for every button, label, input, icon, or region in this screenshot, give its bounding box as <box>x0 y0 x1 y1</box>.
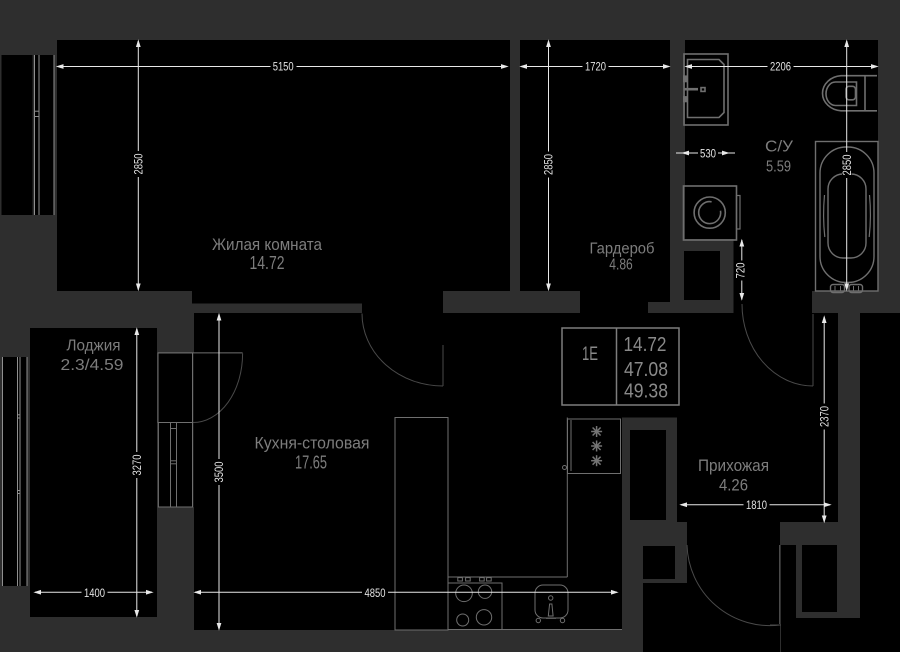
svg-text:4850: 4850 <box>365 588 386 600</box>
svg-text:2.3/4.59: 2.3/4.59 <box>61 357 124 374</box>
svg-text:1Е: 1Е <box>582 344 598 365</box>
svg-text:14.72: 14.72 <box>624 334 667 356</box>
svg-text:Жилая комната: Жилая комната <box>212 236 323 254</box>
svg-text:1720: 1720 <box>585 62 606 74</box>
svg-text:720: 720 <box>736 263 748 279</box>
svg-text:Прихожая: Прихожая <box>698 457 769 475</box>
svg-text:3500: 3500 <box>214 462 226 483</box>
svg-text:47.08: 47.08 <box>624 359 668 381</box>
svg-text:49.38: 49.38 <box>624 381 668 403</box>
svg-text:С/У: С/У <box>765 139 794 156</box>
svg-text:4.26: 4.26 <box>719 476 748 495</box>
svg-text:2850: 2850 <box>544 154 556 175</box>
svg-text:5.59: 5.59 <box>766 159 791 176</box>
svg-text:Гардероб: Гардероб <box>590 241 655 258</box>
svg-text:2206: 2206 <box>770 62 791 74</box>
svg-text:14.72: 14.72 <box>250 253 285 273</box>
svg-text:4.86: 4.86 <box>609 257 633 274</box>
svg-text:Лоджия: Лоджия <box>67 338 121 355</box>
svg-text:1810: 1810 <box>746 500 767 512</box>
svg-text:Кухня-столовая: Кухня-столовая <box>255 434 370 453</box>
svg-text:530: 530 <box>700 149 716 161</box>
svg-text:5150: 5150 <box>273 62 294 74</box>
svg-text:2370: 2370 <box>819 406 831 427</box>
svg-text:2850: 2850 <box>842 155 854 176</box>
svg-text:3270: 3270 <box>132 455 144 476</box>
svg-text:1400: 1400 <box>84 588 105 600</box>
svg-text:2850: 2850 <box>134 154 146 175</box>
svg-text:17.65: 17.65 <box>295 453 327 473</box>
